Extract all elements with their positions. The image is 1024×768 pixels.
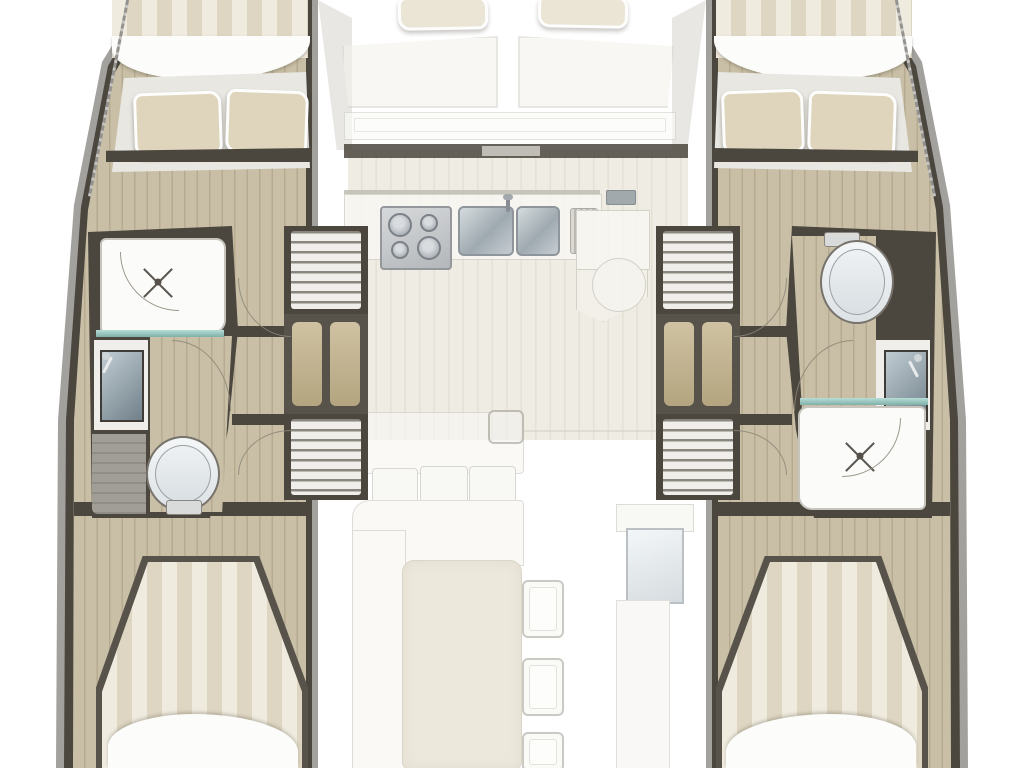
stbd-toilet (820, 240, 894, 324)
sink-basin-left (458, 206, 514, 256)
floorplan-canvas (0, 0, 1024, 768)
port-storage-locker (284, 314, 368, 414)
port-shower-grate (92, 434, 146, 514)
port-stairs-forward (291, 231, 361, 309)
stbd-storage-locker (656, 314, 740, 414)
stbd-locker-door-2 (702, 322, 732, 406)
stbd-stairs-aft (663, 419, 733, 495)
chair-2 (522, 658, 564, 716)
chair-1 (522, 580, 564, 638)
sofa-cushion-3 (469, 466, 516, 504)
port-faucet-knob (102, 352, 110, 360)
port-locker-door-1 (292, 322, 322, 406)
chair-3 (522, 732, 564, 768)
sofa-cushion-2 (420, 466, 468, 504)
port-locker-door-2 (330, 322, 360, 406)
port-fwd-pillow-left (133, 90, 223, 157)
stove-burner-4 (417, 236, 441, 260)
stbd-locker-door-1 (664, 322, 694, 406)
port-fwd-pillow-right (225, 89, 309, 156)
stbd-stairs-forward (663, 231, 733, 309)
port-toilet-tank (166, 500, 202, 515)
port-shower-glass-partition (96, 330, 224, 337)
stbd-fwd-pillow-left (721, 89, 805, 156)
starboard-hull (624, 0, 1024, 768)
stbd-faucet-knob (914, 354, 922, 362)
sofa-corner-module (488, 410, 524, 444)
sink-faucet-knob (503, 194, 513, 200)
stove-burner-3 (420, 214, 438, 232)
sink-faucet (506, 198, 510, 212)
dining-table (402, 560, 522, 768)
port-stairs-aft (291, 419, 361, 495)
sink-basin-right (516, 206, 560, 256)
stbd-wall-segment-2 (736, 414, 792, 425)
stbd-fwd-pillow-right (807, 90, 897, 157)
port-hull (0, 0, 400, 768)
port-wall-segment-2 (232, 414, 288, 425)
